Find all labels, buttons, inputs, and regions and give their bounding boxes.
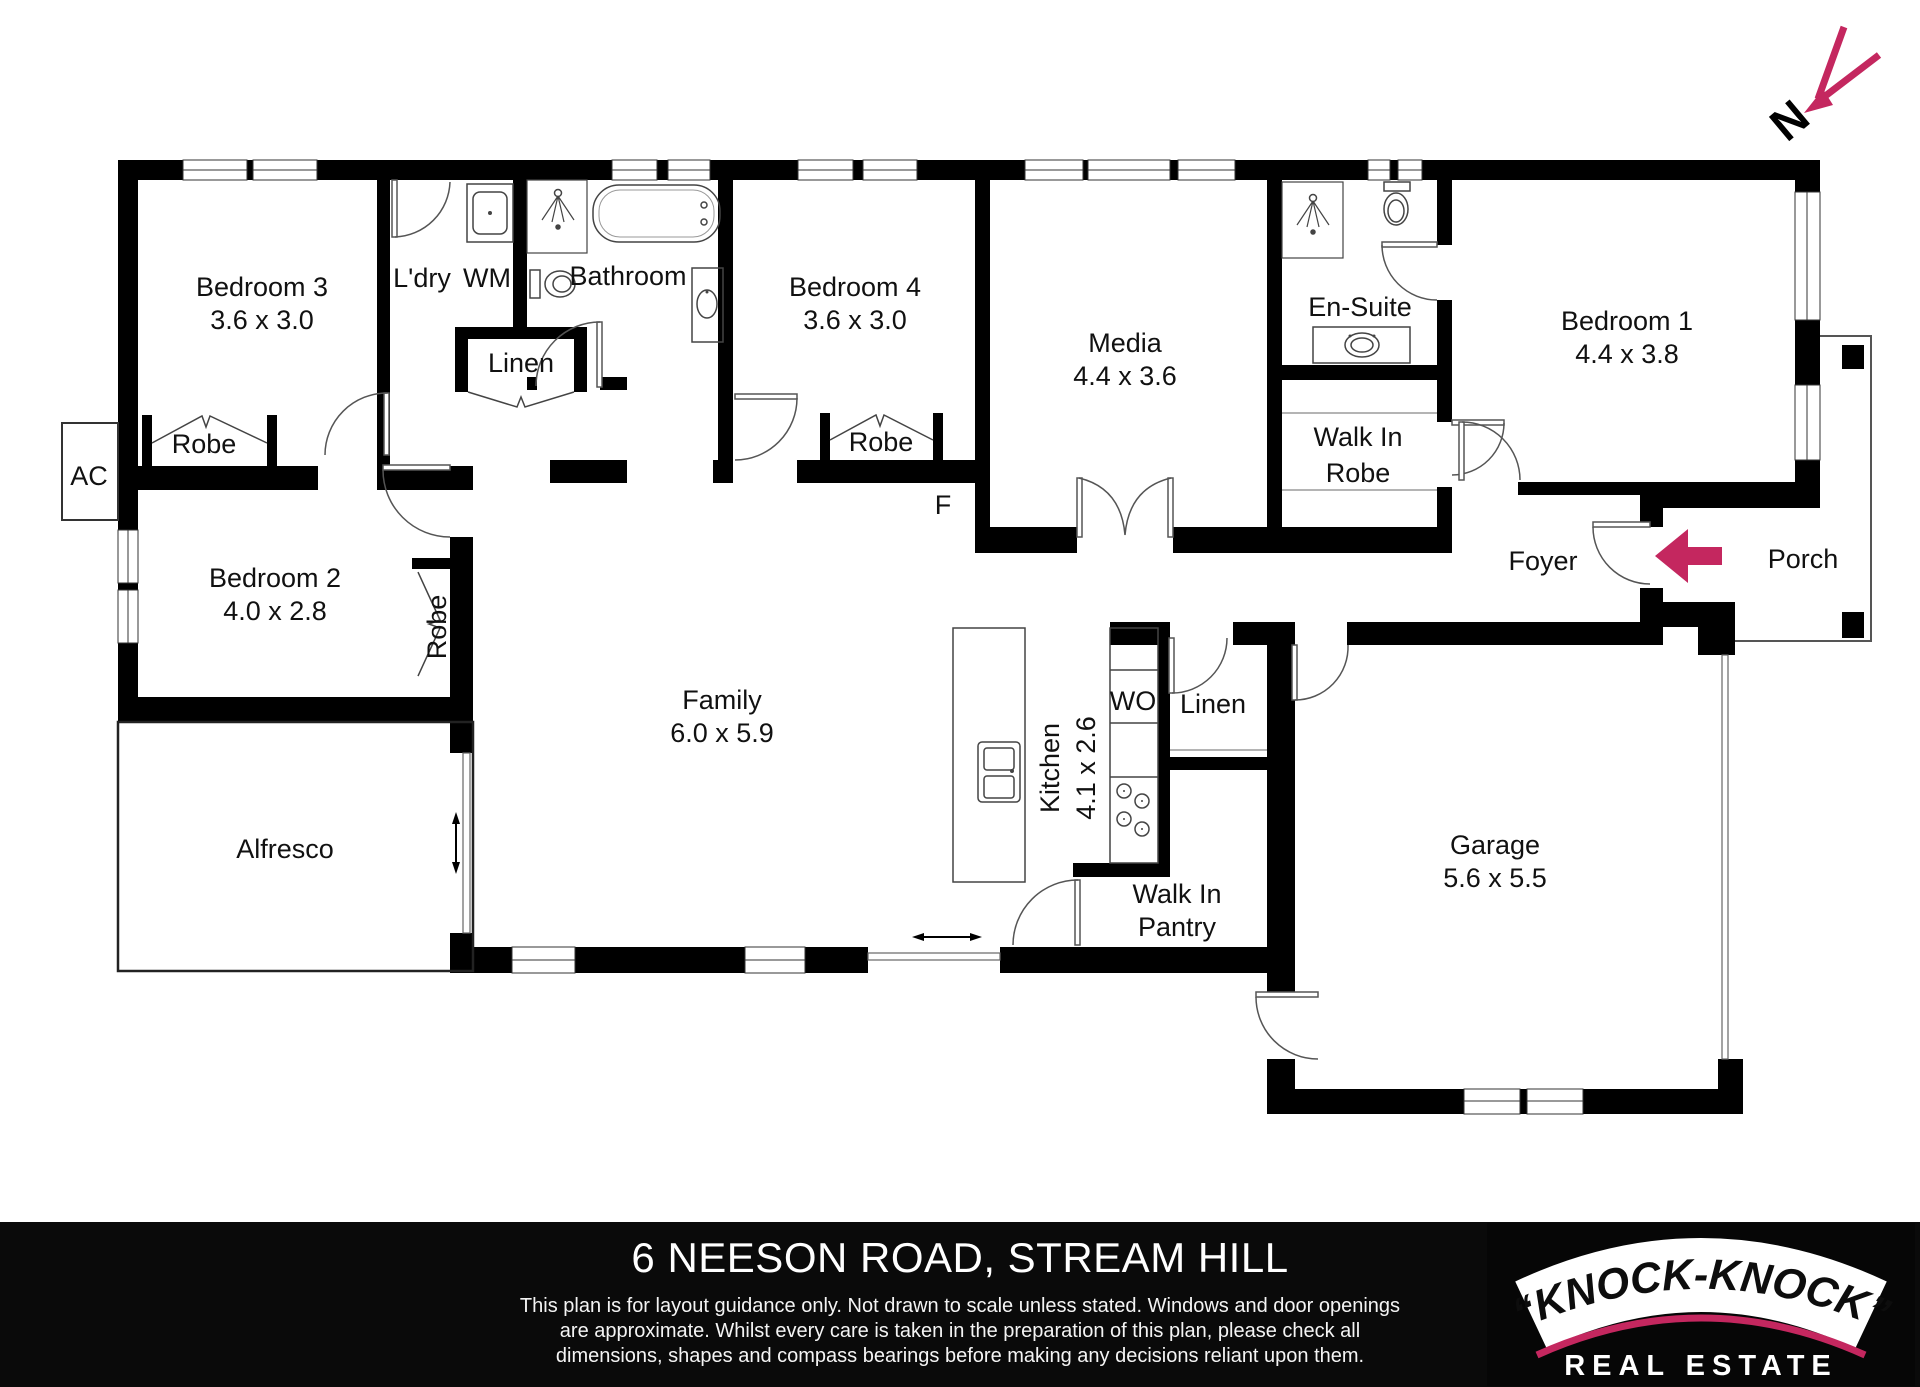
room-label-bedroom-4: Bedroom 4 <box>789 272 921 302</box>
room-dims-bedroom-1: 4.4 x 3.8 <box>1575 339 1679 369</box>
label-robe-bed3: Robe <box>172 429 237 459</box>
label-alfresco: Alfresco <box>236 834 334 864</box>
room-dims-media: 4.4 x 3.6 <box>1073 361 1177 391</box>
label-ldry: L'dry <box>393 263 451 293</box>
linen-rail <box>468 392 574 407</box>
agency-logo-canvas: “KNOCK-KNOCK” REAL ESTATE <box>1487 1223 1915 1386</box>
compass-north-label: N <box>1760 90 1819 151</box>
bathtub-icon <box>593 185 720 242</box>
garage-door-line <box>1722 655 1728 1059</box>
room-label-bedroom-2: Bedroom 2 <box>209 563 341 593</box>
agency-logo: “KNOCK-KNOCK” REAL ESTATE <box>1487 1223 1915 1386</box>
label-fridge: F <box>935 490 952 520</box>
room-label-media: Media <box>1088 328 1163 358</box>
label-robe-bed2: Robe <box>422 595 452 660</box>
room-label-bedroom-1: Bedroom 1 <box>1561 306 1693 336</box>
room-dims-bedroom-2: 4.0 x 2.8 <box>223 596 327 626</box>
sliding-door-family <box>868 953 1000 960</box>
label-foyer: Foyer <box>1508 546 1577 576</box>
label-porch: Porch <box>1768 544 1839 574</box>
sliding-door-alfresco <box>463 753 470 933</box>
logo-tagline-text: REAL ESTATE <box>1564 1350 1838 1382</box>
room-dims-garage: 5.6 x 5.5 <box>1443 863 1547 893</box>
bathroom-shower-icon <box>527 180 587 253</box>
label-wir-line1: Walk In <box>1313 422 1402 452</box>
annotations-layer <box>152 392 1437 941</box>
room-label-garage: Garage <box>1450 830 1540 860</box>
ensuite-vanity-icon <box>1313 327 1410 363</box>
room-dims-kitchen: 4.1 x 2.6 <box>1071 716 1101 820</box>
label-ac: AC <box>70 461 108 491</box>
entry-direction-arrow <box>1655 529 1722 583</box>
label-wir-line2: Robe <box>1326 458 1391 488</box>
label-wm: WM <box>463 263 511 293</box>
label-bathroom: Bathroom <box>569 261 686 291</box>
cooktop-icon <box>1117 784 1149 836</box>
kitchen-bench <box>1110 628 1158 863</box>
room-label-family: Family <box>682 685 762 715</box>
slider-arrow-horizontal <box>912 933 982 941</box>
label-linen-hall: Linen <box>488 348 554 378</box>
label-robe-bed4: Robe <box>849 427 914 457</box>
floor-plan-canvas: N Bedroom 3 3.6 x 3.0 Bedroom 4 3.6 x 3.… <box>0 0 1920 1222</box>
room-dims-bedroom-3: 3.6 x 3.0 <box>210 305 314 335</box>
room-label-bedroom-3: Bedroom 3 <box>196 272 328 302</box>
room-dims-bedroom-4: 3.6 x 3.0 <box>803 305 907 335</box>
ensuite-shower-icon <box>1282 182 1343 258</box>
label-wo: WO <box>1110 686 1157 716</box>
room-dims-family: 6.0 x 5.9 <box>670 718 774 748</box>
laundry-tub-icon <box>467 184 513 242</box>
ensuite-toilet-icon <box>1384 182 1410 225</box>
labels-layer: Bedroom 3 3.6 x 3.0 Bedroom 4 3.6 x 3.0 … <box>70 261 1838 942</box>
bathroom-toilet-icon <box>530 270 575 298</box>
label-ensuite: En-Suite <box>1308 292 1412 322</box>
label-wip-line1: Walk In <box>1132 879 1221 909</box>
label-wip-line2: Pantry <box>1138 912 1217 942</box>
slider-arrow-vertical <box>452 812 460 874</box>
label-linen-kitchen: Linen <box>1180 689 1246 719</box>
floorplan-page: N Bedroom 3 3.6 x 3.0 Bedroom 4 3.6 x 3.… <box>0 0 1920 1387</box>
kitchen-island <box>953 628 1025 882</box>
compass-north-arrow: N <box>1760 27 1879 151</box>
room-label-kitchen: Kitchen <box>1035 723 1065 813</box>
footer-bar: 6 NEESON ROAD, STREAM HILL This plan is … <box>0 1222 1920 1387</box>
